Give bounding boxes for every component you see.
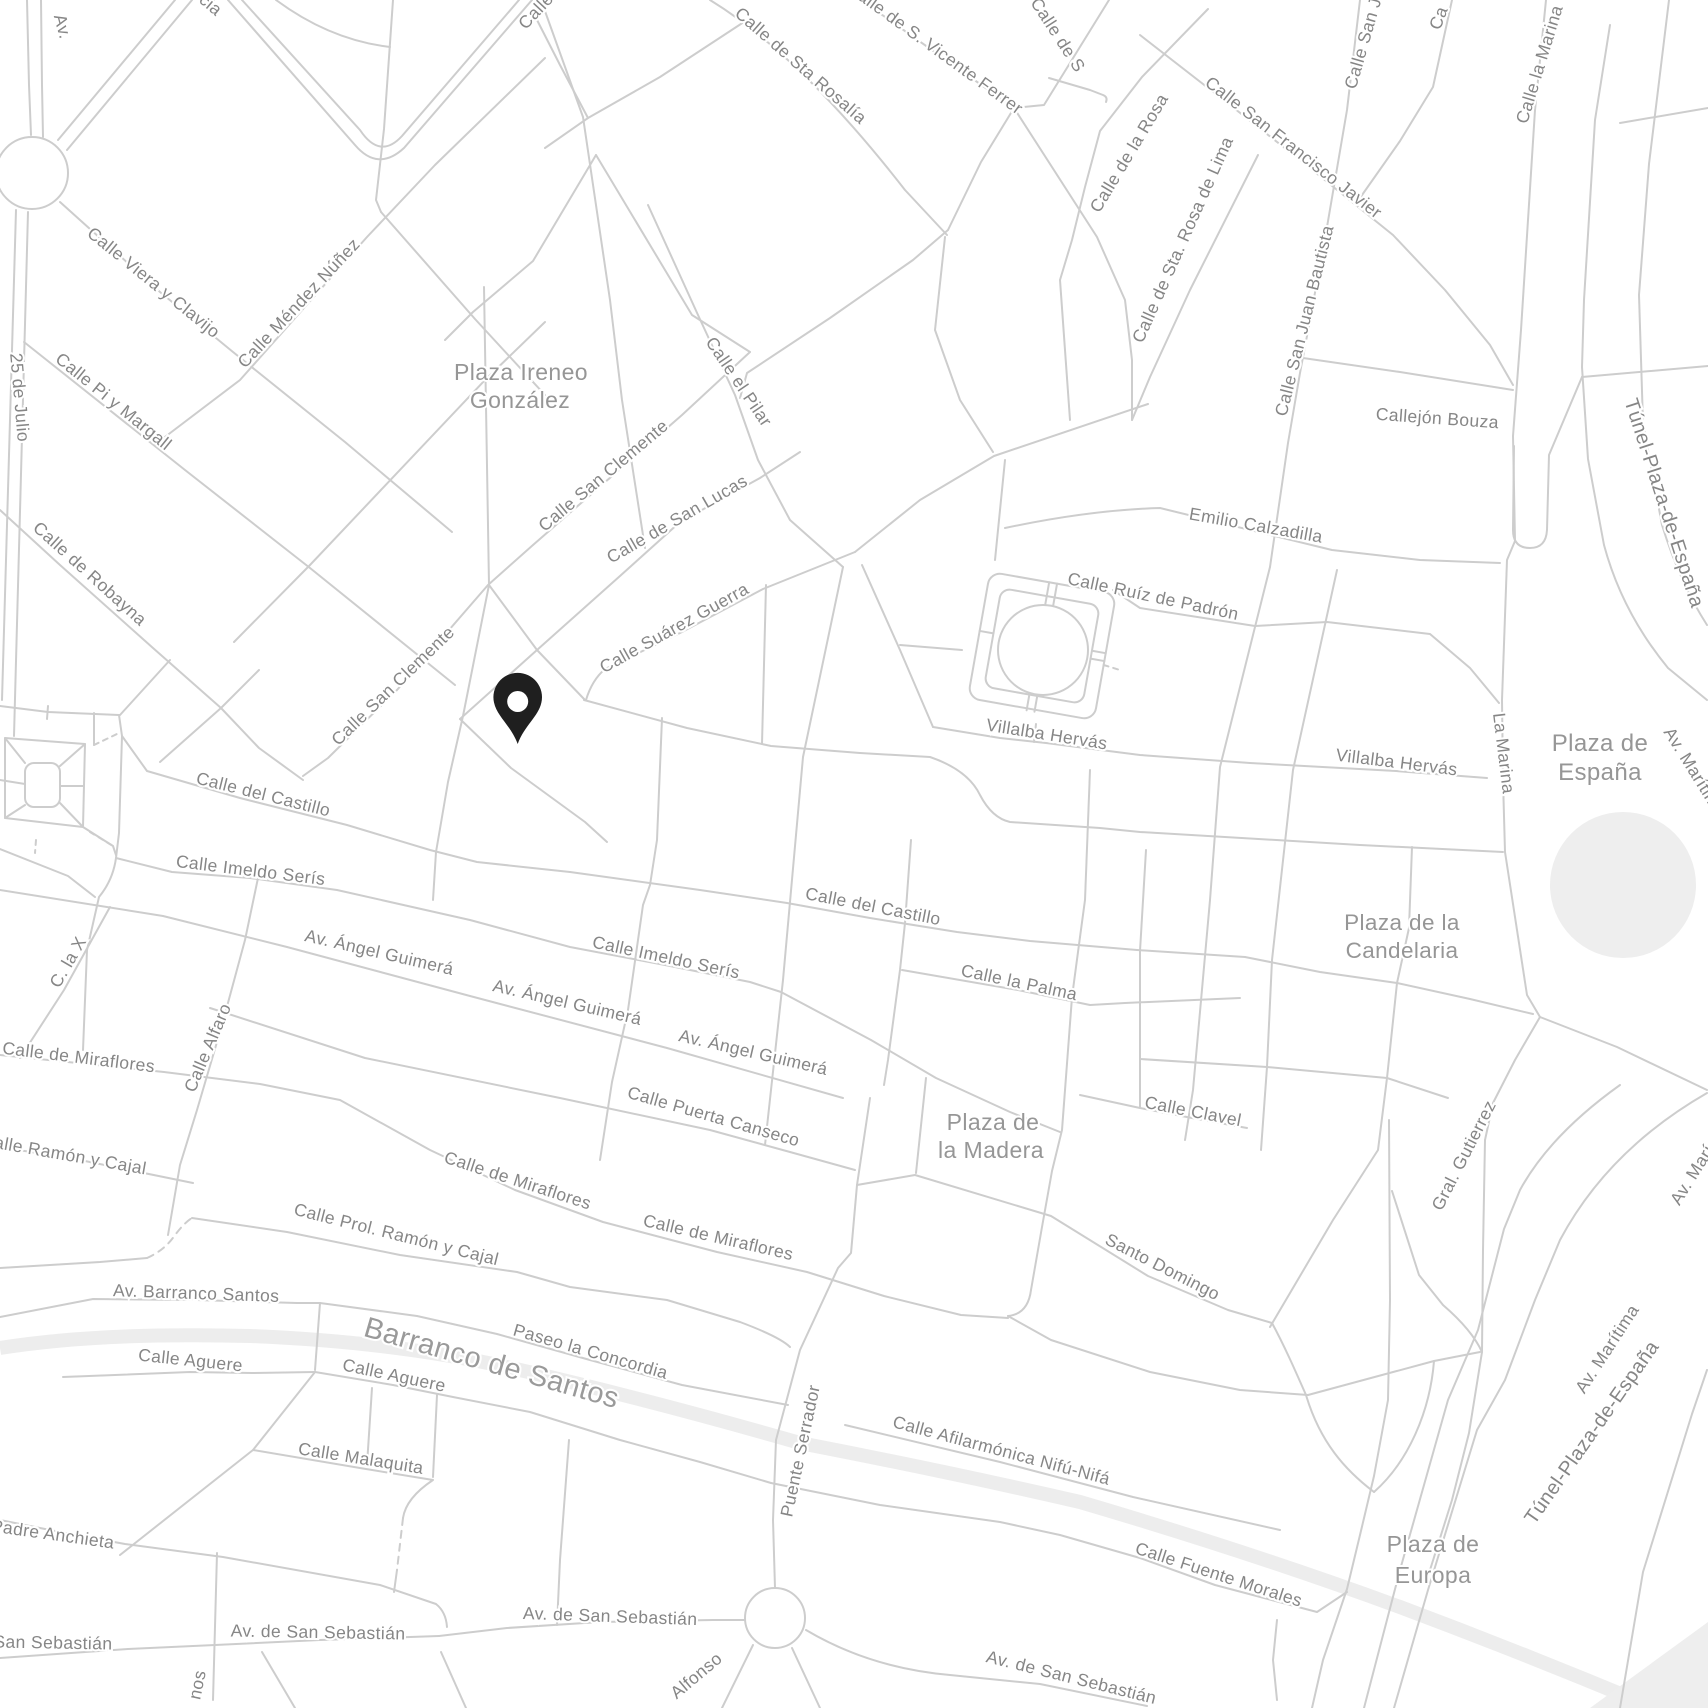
svg-text:Plaza Ireneo: Plaza Ireneo [454, 359, 588, 385]
svg-text:Av. de San Sebastián: Av. de San Sebastián [0, 1630, 113, 1653]
svg-text:González: González [470, 387, 570, 413]
svg-text:Candelaria: Candelaria [1346, 938, 1459, 963]
svg-text:Plaza de la: Plaza de la [1344, 910, 1460, 935]
svg-text:España: España [1558, 759, 1642, 786]
svg-text:Plaza de: Plaza de [947, 1109, 1040, 1135]
svg-text:Plaza de: Plaza de [1552, 730, 1649, 757]
svg-text:Av. de San Sebastián: Av. de San Sebastián [231, 1620, 406, 1643]
svg-text:Europa: Europa [1395, 1562, 1472, 1588]
svg-text:la Madera: la Madera [938, 1137, 1044, 1163]
svg-text:Plaza de: Plaza de [1387, 1531, 1480, 1557]
